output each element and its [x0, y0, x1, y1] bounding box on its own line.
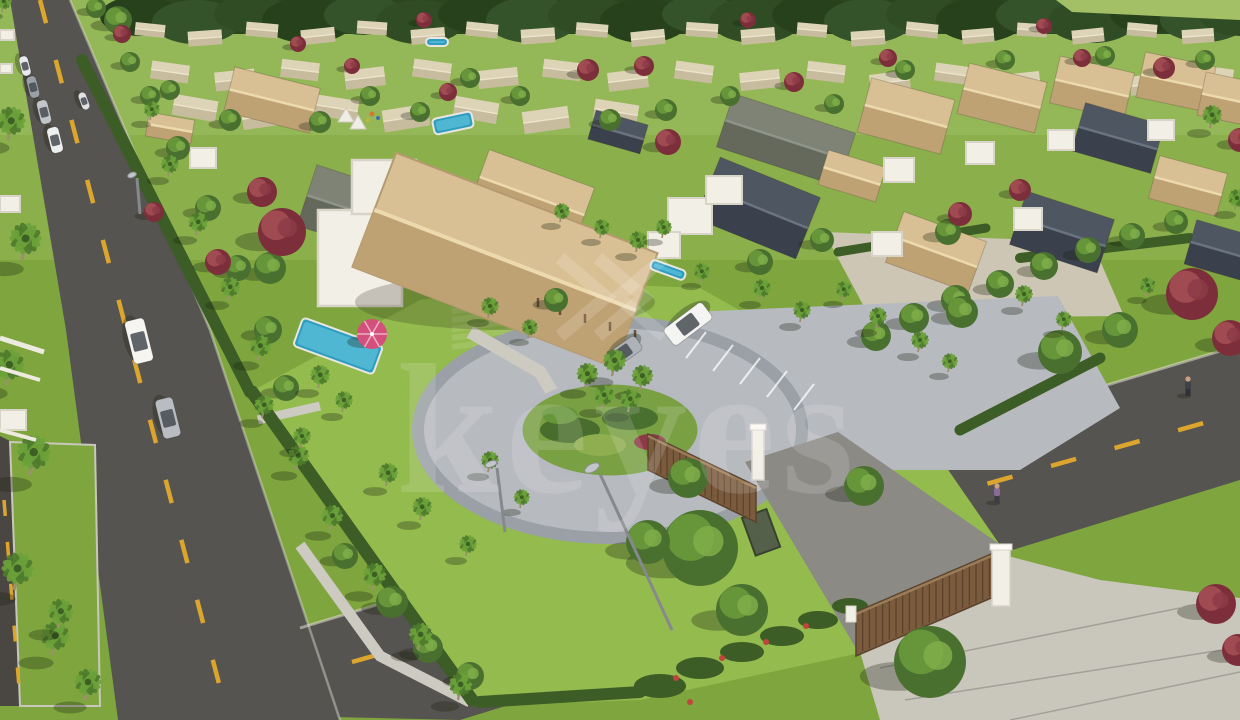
- palm-shadow: [173, 236, 197, 245]
- palm-shadow: [541, 223, 561, 230]
- palm-crown: [30, 448, 38, 456]
- palm-crown: [700, 269, 704, 273]
- palm-crown: [372, 572, 378, 578]
- palm-crown: [662, 225, 666, 229]
- aerial-render: keyes: [0, 0, 1240, 720]
- resort-aerial-scene: keyes: [0, 0, 1240, 720]
- palm-crown: [168, 162, 172, 166]
- palm-shadow: [147, 177, 169, 185]
- tree-canopy: [1203, 54, 1211, 62]
- person-torso: [1185, 381, 1191, 389]
- flower-cluster: [803, 623, 809, 629]
- palm-crown: [1235, 196, 1239, 200]
- tree-canopy: [1003, 54, 1011, 62]
- distant-villa: [796, 22, 827, 38]
- palm-shadow: [1043, 331, 1063, 338]
- watermark-text: keyes: [396, 327, 860, 533]
- white-cube-building: [0, 64, 12, 73]
- palm-shadow: [131, 121, 151, 128]
- palm-shadow: [233, 361, 259, 371]
- palm-shadow: [271, 471, 297, 481]
- palm-crown: [258, 343, 263, 348]
- tree-canopy: [1018, 184, 1027, 193]
- palm-crown: [342, 398, 346, 402]
- palm-crown: [228, 284, 233, 289]
- white-cube-building: [1048, 130, 1074, 150]
- palm-shadow: [615, 253, 637, 261]
- white-cube-building: [1148, 120, 1174, 140]
- tree-canopy: [554, 293, 564, 303]
- shrub-bed: [676, 657, 724, 679]
- tree-canopy: [1056, 339, 1074, 357]
- tree-canopy: [946, 224, 956, 234]
- tree-canopy: [216, 254, 226, 264]
- palm-shadow: [18, 657, 53, 670]
- palm-shadow: [295, 389, 319, 398]
- tree-canopy: [1103, 50, 1111, 58]
- tree-canopy: [1041, 258, 1052, 269]
- pillar-cap: [990, 544, 1012, 550]
- pool-highlight: [429, 41, 445, 43]
- tree-canopy: [1187, 279, 1208, 300]
- flower-cluster: [763, 639, 769, 645]
- palm-crown: [58, 608, 64, 614]
- palm-shadow: [681, 283, 701, 290]
- white-cube-building: [706, 176, 742, 204]
- palm-shadow: [1001, 307, 1023, 315]
- tree-canopy: [297, 39, 303, 45]
- palm-crown: [760, 286, 764, 290]
- flower-cluster: [673, 675, 679, 681]
- tree-canopy: [666, 134, 676, 144]
- flower-cluster: [687, 699, 693, 705]
- palm-crown: [318, 372, 323, 377]
- tree-canopy: [259, 183, 271, 195]
- distant-villa: [1126, 22, 1157, 38]
- person-torso: [994, 488, 1000, 496]
- tree-canopy: [467, 668, 478, 679]
- palm-shadow: [29, 629, 60, 640]
- palm-crown: [948, 359, 952, 363]
- tree-canopy: [728, 90, 736, 98]
- tree-canopy: [120, 29, 127, 36]
- palm-shadow: [391, 651, 420, 661]
- person-legs: [995, 495, 1000, 503]
- tree-canopy: [228, 114, 237, 123]
- palm-crown: [1146, 283, 1150, 287]
- palm-crown: [14, 564, 22, 572]
- palm-shadow: [467, 319, 489, 327]
- palm-crown: [300, 434, 304, 438]
- tree-canopy: [737, 595, 758, 616]
- tree-canopy: [265, 322, 276, 333]
- palm-crown: [560, 209, 564, 213]
- white-cube-building: [0, 196, 20, 212]
- white-cube-building: [0, 410, 26, 430]
- palm-shadow: [363, 487, 387, 496]
- tree-canopy: [128, 56, 136, 64]
- palm-shadow: [1214, 211, 1236, 219]
- gate-pillar: [992, 548, 1010, 606]
- road-dash: [14, 626, 15, 642]
- tree-canopy: [518, 90, 526, 98]
- palm-crown: [85, 679, 92, 686]
- palm-shadow: [897, 353, 919, 361]
- tree-canopy: [758, 254, 768, 264]
- tree-canopy: [468, 72, 476, 80]
- tree-canopy: [1162, 62, 1171, 71]
- palm-crown: [636, 238, 640, 242]
- tree-canopy: [94, 2, 102, 10]
- palm-shadow: [305, 531, 331, 541]
- palm-shadow: [1127, 297, 1147, 304]
- palm-crown: [458, 682, 464, 688]
- flower-cluster: [719, 655, 725, 661]
- tree-canopy: [236, 260, 246, 270]
- palm-crown: [418, 632, 424, 638]
- tree-canopy: [664, 104, 673, 113]
- palm-crown: [1210, 112, 1215, 117]
- palm-shadow: [279, 449, 301, 457]
- tree-canopy: [792, 76, 800, 84]
- tree-canopy: [389, 593, 402, 606]
- white-cube-building: [0, 30, 14, 40]
- palm-shadow: [643, 239, 663, 246]
- tree-canopy: [1086, 242, 1096, 252]
- tree-canopy: [343, 548, 353, 558]
- tree-canopy: [1130, 228, 1140, 238]
- shrub-bed: [720, 642, 764, 662]
- palm-shadow: [345, 591, 374, 601]
- tree-canopy: [832, 98, 840, 106]
- tree-canopy: [423, 15, 429, 21]
- palm-shadow: [321, 413, 343, 421]
- palm-shadow: [205, 301, 229, 310]
- white-cube-building: [872, 232, 902, 256]
- tree-canopy: [747, 15, 753, 21]
- tree-canopy: [115, 12, 126, 23]
- palm-shadow: [54, 702, 87, 714]
- tree-canopy: [368, 90, 376, 98]
- person-head: [1185, 376, 1190, 381]
- tree-canopy: [284, 380, 294, 390]
- distant-villa: [188, 29, 223, 46]
- playground-equipment: [366, 118, 370, 122]
- tree-canopy: [446, 87, 453, 94]
- palm-shadow: [581, 239, 601, 246]
- palm-crown: [488, 304, 492, 308]
- tree-canopy: [642, 60, 650, 68]
- distant-villa: [740, 27, 775, 45]
- palm-crown: [842, 287, 846, 291]
- person-legs: [1186, 388, 1191, 396]
- tree-canopy: [958, 207, 968, 217]
- tree-canopy: [152, 206, 160, 214]
- tree-canopy: [911, 309, 923, 321]
- distant-villa: [245, 22, 278, 39]
- tree-canopy: [267, 259, 280, 272]
- palm-crown: [386, 470, 391, 475]
- tree-canopy: [924, 641, 953, 670]
- tree-canopy: [206, 200, 216, 210]
- playground-equipment: [370, 112, 375, 117]
- palm-crown: [8, 117, 15, 124]
- distant-villa: [575, 22, 608, 38]
- palm-crown: [876, 314, 880, 318]
- palm-crown: [6, 361, 13, 368]
- tree-canopy: [176, 141, 186, 151]
- palm-shadow: [739, 301, 761, 309]
- distant-villa: [686, 22, 719, 38]
- palm-crown: [150, 107, 154, 111]
- palm-crown: [600, 225, 604, 229]
- tree-canopy: [860, 474, 876, 490]
- tree-canopy: [1212, 592, 1228, 608]
- palm-crown: [262, 402, 267, 407]
- palm-shadow: [1187, 129, 1211, 138]
- distant-villa: [521, 27, 556, 44]
- tree-canopy: [997, 276, 1008, 287]
- playground-equipment: [376, 116, 380, 120]
- tree-canopy: [418, 106, 426, 114]
- umbrella-tip: [370, 332, 374, 336]
- palm-shadow: [929, 373, 949, 380]
- tree-canopy: [959, 303, 972, 316]
- palm-crown: [918, 338, 922, 342]
- road-dash: [17, 667, 18, 683]
- tree-canopy: [168, 84, 176, 92]
- palm-crown: [330, 513, 335, 518]
- tree-canopy: [608, 114, 617, 123]
- tree-canopy: [318, 116, 327, 125]
- tree-canopy: [148, 90, 156, 98]
- palm-crown: [466, 542, 470, 546]
- palm-crown: [1062, 317, 1066, 321]
- gate-keypad: [846, 606, 856, 622]
- palm-shadow: [445, 557, 467, 565]
- tree-canopy: [820, 233, 830, 243]
- white-cube-building: [1014, 208, 1042, 230]
- road-dash: [4, 500, 5, 516]
- white-cube-building: [884, 158, 914, 182]
- distant-villa: [851, 29, 886, 46]
- palm-crown: [22, 234, 30, 242]
- palm-shadow: [239, 419, 263, 428]
- tree-canopy: [278, 218, 297, 237]
- white-cube-building: [190, 148, 216, 168]
- tree-canopy: [351, 61, 357, 67]
- palm-crown: [800, 308, 804, 312]
- distant-villa: [961, 28, 994, 45]
- tree-canopy: [1117, 320, 1131, 334]
- tree-canopy: [1043, 21, 1049, 27]
- distant-villa: [357, 20, 388, 35]
- palm-shadow: [823, 301, 843, 308]
- tree-canopy: [886, 53, 893, 60]
- swimming-pool: [426, 38, 448, 46]
- tree-canopy: [1174, 215, 1184, 225]
- tree-canopy: [1080, 53, 1087, 60]
- palm-crown: [1022, 292, 1026, 296]
- tree-canopy: [903, 64, 911, 72]
- white-cube-building: [966, 142, 994, 164]
- person-head: [994, 483, 999, 488]
- tree-canopy: [586, 64, 595, 73]
- distant-villa: [1182, 28, 1215, 44]
- palm-crown: [196, 219, 201, 224]
- palm-shadow: [431, 701, 460, 711]
